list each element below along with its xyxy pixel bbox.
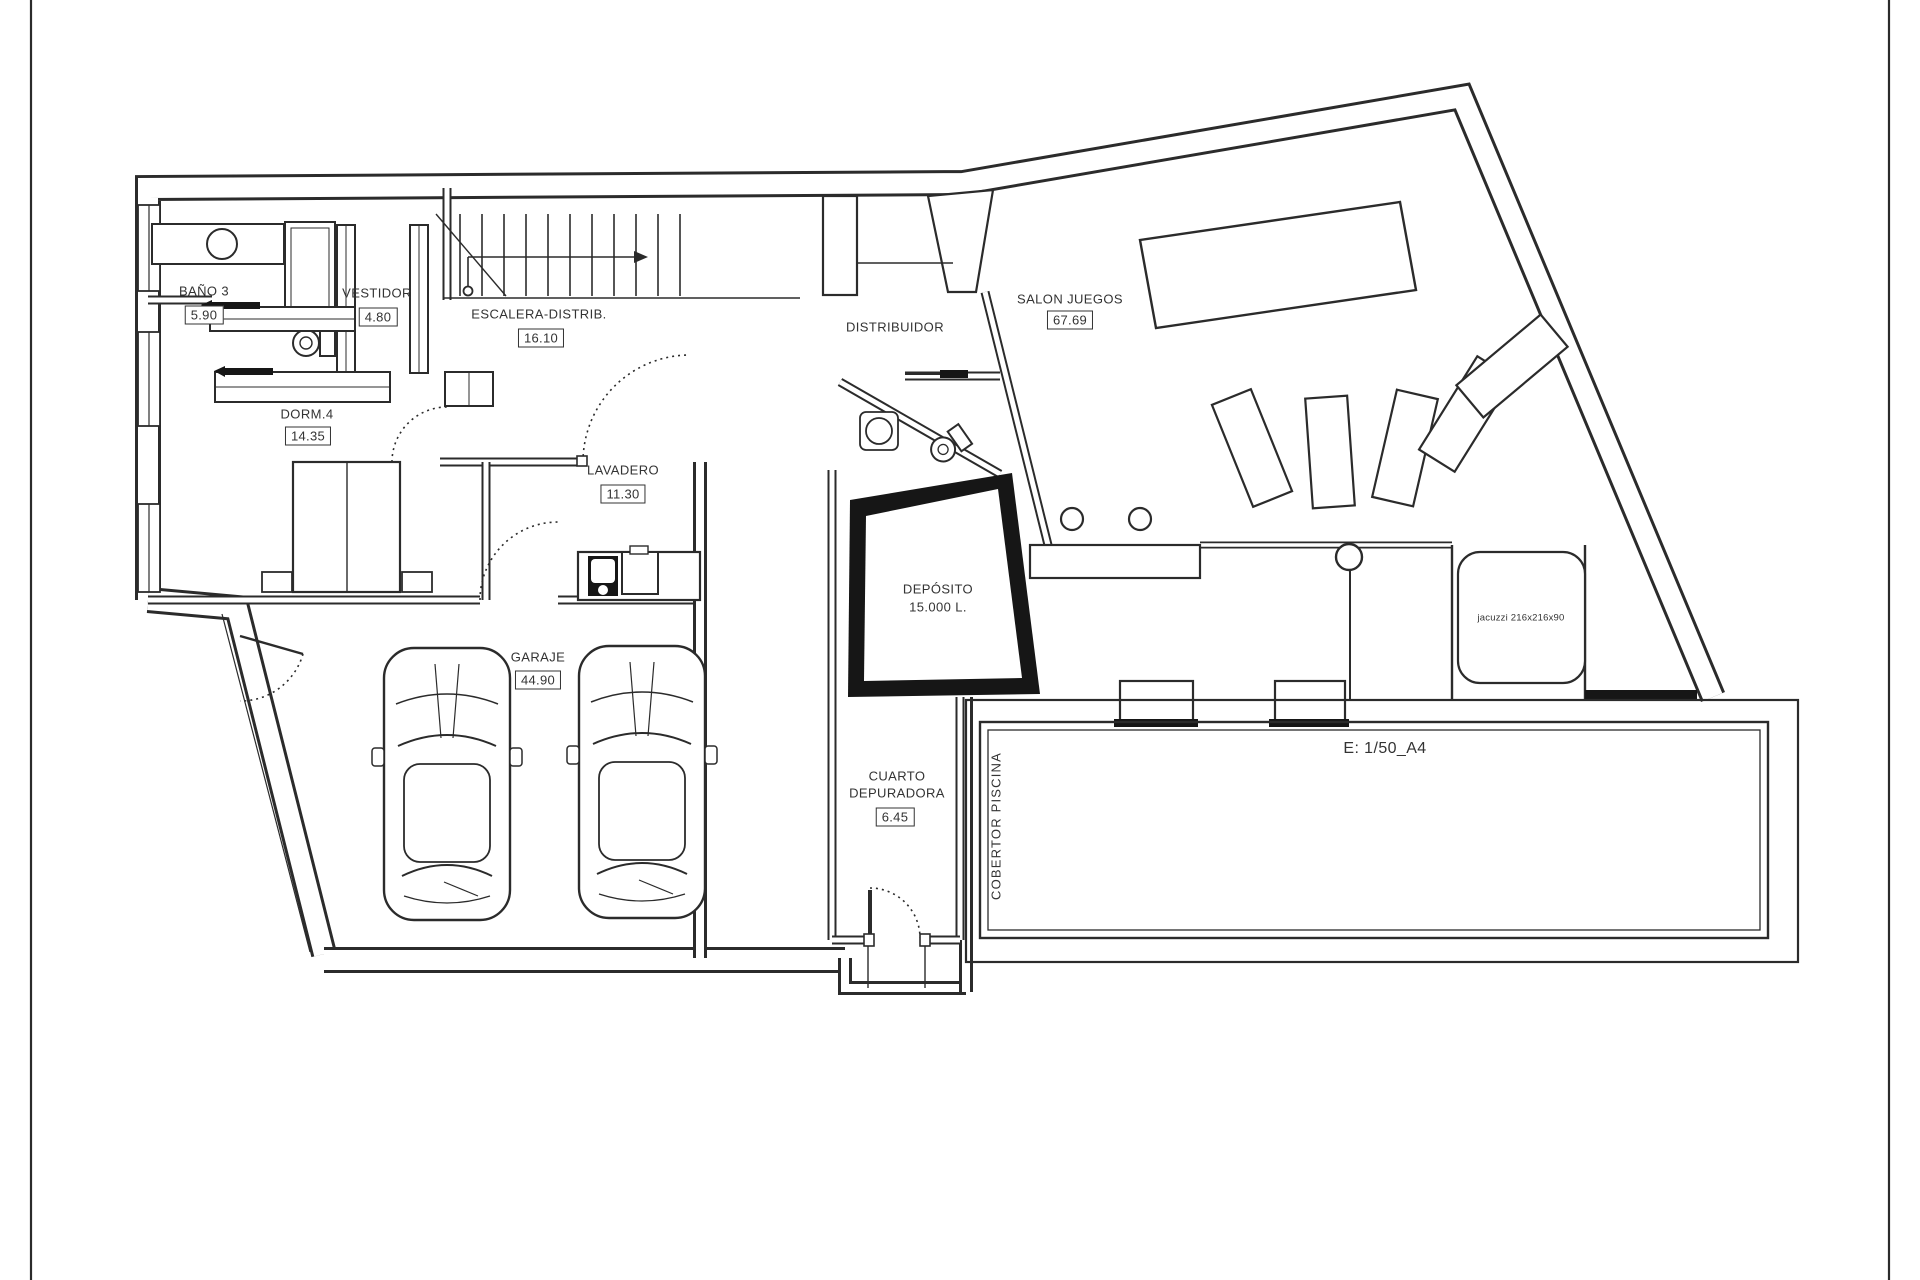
lounger-icon bbox=[1212, 315, 1568, 509]
wc-fixtures bbox=[860, 370, 972, 466]
floor-plan-linework bbox=[0, 0, 1920, 1280]
area-value-lavadero: 11.30 bbox=[600, 485, 645, 504]
washer-icon bbox=[622, 552, 658, 594]
sink-icon bbox=[207, 229, 237, 259]
room-label-deposito: DEPÓSITO bbox=[903, 582, 973, 597]
area-value-cuarto: 6.45 bbox=[876, 808, 915, 827]
room-label-distribuidor: DISTRIBUIDOR bbox=[846, 320, 944, 335]
stool-icon bbox=[1061, 508, 1083, 530]
door-arc-hall bbox=[480, 522, 558, 600]
area-value-salon: 67.69 bbox=[1047, 311, 1093, 330]
door-arc-lavadero bbox=[583, 355, 690, 462]
bed-icon bbox=[262, 462, 432, 592]
room-label-vestidor: VESTIDOR bbox=[342, 286, 412, 301]
area-value-dorm4: 14.35 bbox=[285, 427, 331, 446]
room-label-dorm4: DORM.4 bbox=[281, 407, 334, 422]
room-label-lavadero: LAVADERO bbox=[587, 463, 659, 478]
stool-icon bbox=[1129, 508, 1151, 530]
scale-note: E: 1/50_A4 bbox=[1343, 740, 1426, 758]
porch-piers bbox=[1114, 681, 1697, 727]
floor-plan-page: BAÑO 3 5.90 VESTIDOR 4.80 ESCALERA-DISTR… bbox=[0, 0, 1920, 1280]
door-arc-depuradora bbox=[870, 888, 920, 938]
stairs bbox=[436, 214, 800, 298]
jacuzzi-label: jacuzzi 216x216x90 bbox=[1477, 613, 1564, 624]
area-value-escalera: 16.10 bbox=[518, 329, 564, 348]
bar-counter-icon bbox=[1030, 545, 1200, 578]
deposito-capacity: 15.000 L. bbox=[909, 600, 967, 615]
pool-table-icon bbox=[1140, 202, 1416, 328]
room-label-cuarto-line2: DEPURADORA bbox=[849, 786, 945, 801]
area-value-garaje: 44.90 bbox=[515, 671, 561, 690]
shower-icon bbox=[285, 222, 335, 318]
laundry-fixtures bbox=[578, 546, 700, 600]
room-label-escalera: ESCALERA-DISTRIB. bbox=[471, 307, 606, 322]
pool-terrace bbox=[868, 700, 1798, 988]
room-label-bano3: BAÑO 3 bbox=[179, 284, 229, 299]
toilet-icon bbox=[293, 330, 335, 356]
column-icon bbox=[1336, 544, 1362, 570]
stair-direction-arrow-icon bbox=[464, 251, 649, 296]
pool-cover-label: COBERTOR PISCINA bbox=[989, 752, 1004, 900]
room-label-cuarto-line1: CUARTO bbox=[869, 769, 926, 784]
sink-icon bbox=[866, 418, 892, 444]
room-label-garaje: GARAJE bbox=[511, 650, 565, 665]
top-wall-niches bbox=[823, 190, 993, 295]
area-value-bano3: 5.90 bbox=[185, 306, 224, 325]
room-label-salon: SALON JUEGOS bbox=[1017, 292, 1123, 307]
area-value-vestidor: 4.80 bbox=[359, 308, 398, 327]
door-arc-dorm4 bbox=[392, 407, 447, 462]
